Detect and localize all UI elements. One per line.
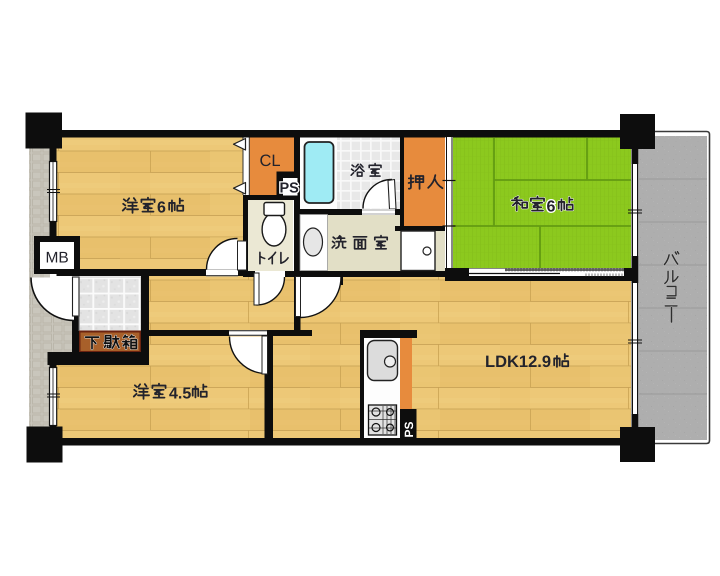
svg-text:PS: PS <box>279 181 299 197</box>
svg-text:LDK12.9: LDK12.9 <box>485 353 551 371</box>
svg-text:6: 6 <box>157 200 166 217</box>
svg-text:PS: PS <box>402 421 416 437</box>
svg-text:CL: CL <box>259 152 280 170</box>
svg-text:4.5: 4.5 <box>169 386 191 403</box>
svg-text:MB: MB <box>45 250 68 267</box>
svg-text:6: 6 <box>546 199 555 216</box>
